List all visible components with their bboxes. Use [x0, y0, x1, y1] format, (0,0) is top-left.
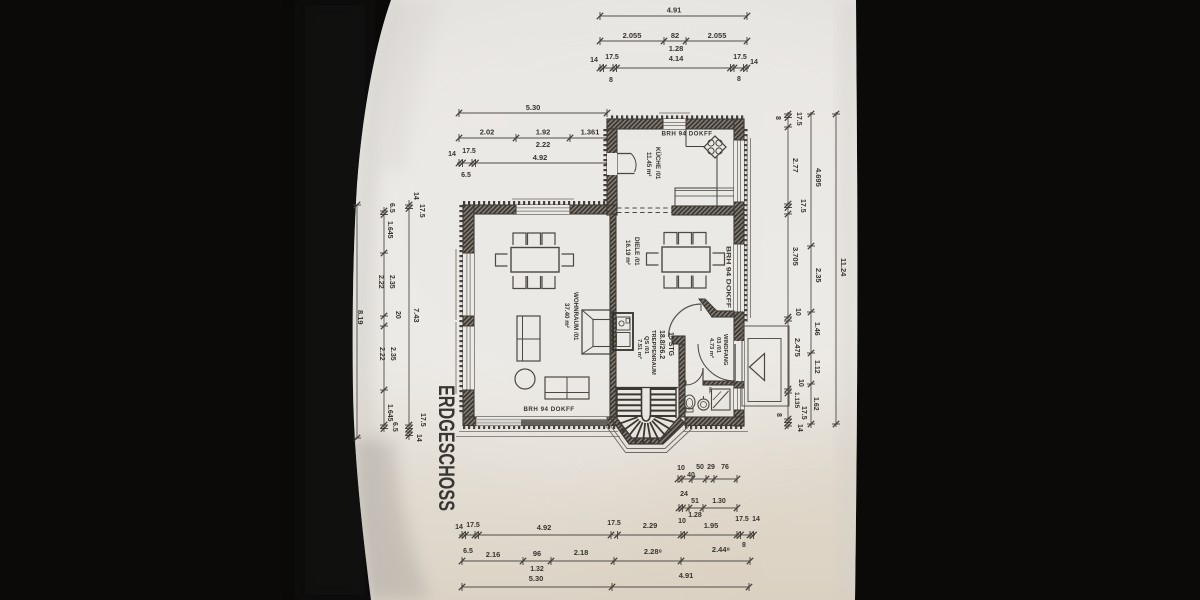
svg-text:1.135: 1.135	[793, 392, 800, 409]
svg-text:6.5: 6.5	[461, 172, 471, 179]
svg-text:7.43: 7.43	[412, 308, 421, 323]
svg-text:10: 10	[677, 465, 685, 472]
svg-text:14: 14	[455, 524, 463, 531]
svg-text:14: 14	[796, 424, 803, 432]
svg-text:1.46: 1.46	[813, 322, 820, 336]
svg-text:8: 8	[774, 116, 781, 120]
svg-text:4.695: 4.695	[814, 168, 823, 187]
svg-text:14: 14	[448, 151, 456, 158]
svg-text:2.02: 2.02	[480, 128, 495, 137]
svg-text:14: 14	[415, 434, 422, 442]
svg-text:2.77: 2.77	[791, 158, 800, 173]
svg-text:14: 14	[590, 57, 598, 64]
svg-text:24: 24	[680, 491, 688, 498]
svg-text:4.73 m²: 4.73 m²	[708, 338, 715, 358]
svg-text:11.24: 11.24	[839, 258, 848, 277]
svg-text:82: 82	[671, 31, 679, 40]
svg-text:10: 10	[794, 308, 801, 316]
svg-text:6.5: 6.5	[388, 203, 395, 213]
svg-text:2.475: 2.475	[793, 338, 802, 357]
svg-text:4.14: 4.14	[669, 54, 684, 63]
svg-text:BRH 94 DOKFF: BRH 94 DOKFF	[725, 246, 731, 308]
svg-text:15 STG: 15 STG	[667, 332, 674, 357]
svg-text:8: 8	[742, 542, 746, 549]
svg-text:1.12: 1.12	[813, 360, 820, 374]
svg-text:2.35: 2.35	[388, 275, 395, 289]
svg-text:2.18: 2.18	[574, 548, 589, 557]
svg-text:4.92: 4.92	[533, 153, 548, 162]
svg-text:BRH 94 DOKFF: BRH 94 DOKFF	[523, 406, 574, 413]
svg-text:WC: WC	[708, 387, 713, 394]
svg-text:17.5: 17.5	[462, 148, 476, 155]
svg-text:20: 20	[394, 311, 401, 319]
svg-text:2.44⁸: 2.44⁸	[712, 545, 731, 554]
svg-text:1.62: 1.62	[812, 397, 819, 411]
svg-text:17.5: 17.5	[466, 522, 480, 529]
svg-text:17.5: 17.5	[735, 516, 749, 523]
svg-text:2.22: 2.22	[378, 347, 385, 361]
svg-text:11.45 m²: 11.45 m²	[645, 152, 652, 176]
svg-text:96: 96	[533, 549, 541, 558]
svg-text:14: 14	[412, 192, 419, 200]
svg-text:2.16: 2.16	[486, 550, 501, 559]
svg-text:17.5: 17.5	[419, 413, 426, 427]
svg-text:1.32: 1.32	[530, 566, 544, 573]
svg-text:17.5: 17.5	[799, 199, 806, 213]
svg-text:29: 29	[707, 464, 715, 471]
svg-text:10: 10	[797, 379, 804, 387]
svg-text:17.5: 17.5	[800, 406, 807, 420]
svg-text:17.5: 17.5	[795, 112, 802, 126]
svg-text:3.705: 3.705	[791, 247, 800, 266]
svg-text:1.28: 1.28	[669, 44, 684, 53]
svg-text:TREPPENRAUM: TREPPENRAUM	[650, 330, 656, 375]
svg-text:1.30: 1.30	[712, 498, 726, 505]
svg-text:BRH 94 DOKFF: BRH 94 DOKFF	[661, 131, 712, 138]
svg-text:8: 8	[609, 77, 613, 84]
svg-text:16.19 m²: 16.19 m²	[624, 240, 631, 265]
svg-text:1.645: 1.645	[386, 404, 393, 422]
svg-text:2.28⁸: 2.28⁸	[644, 547, 663, 556]
svg-text:5.30: 5.30	[526, 103, 541, 112]
svg-text:WINDFANG: WINDFANG	[722, 334, 728, 366]
svg-text:QS /01: QS /01	[643, 336, 649, 355]
svg-text:03 /01: 03 /01	[715, 337, 721, 354]
svg-text:40: 40	[687, 472, 695, 479]
svg-text:2.22: 2.22	[536, 140, 551, 149]
svg-text:1.361: 1.361	[581, 128, 600, 137]
svg-text:17.5: 17.5	[605, 54, 619, 61]
svg-text:4.92: 4.92	[537, 523, 552, 532]
svg-text:2.29: 2.29	[643, 521, 658, 530]
svg-text:1.95: 1.95	[704, 521, 719, 530]
svg-text:5.30: 5.30	[529, 574, 544, 583]
svg-text:KÜCHE /01: KÜCHE /01	[654, 147, 661, 180]
svg-text:7.51 m²: 7.51 m²	[636, 339, 643, 359]
svg-text:6.5: 6.5	[463, 548, 473, 555]
svg-text:6.5: 6.5	[391, 422, 398, 432]
svg-text:4.91: 4.91	[667, 6, 682, 15]
svg-text:18.8/26.2: 18.8/26.2	[658, 330, 665, 359]
svg-text:ERDGESCHOSS: ERDGESCHOSS	[434, 385, 459, 511]
svg-text:17.5: 17.5	[418, 204, 425, 218]
svg-text:76: 76	[721, 464, 729, 471]
svg-text:8.19: 8.19	[356, 310, 365, 325]
svg-text:1.645: 1.645	[386, 221, 393, 239]
svg-text:14: 14	[752, 516, 760, 523]
svg-text:DIELE /01: DIELE /01	[633, 237, 640, 266]
svg-text:50: 50	[696, 464, 704, 471]
svg-text:2.055: 2.055	[623, 31, 642, 40]
svg-text:1.28: 1.28	[688, 512, 702, 519]
svg-text:2.35: 2.35	[389, 347, 396, 361]
svg-text:4.91: 4.91	[679, 571, 694, 580]
svg-text:17.5: 17.5	[733, 54, 747, 61]
svg-text:WOHNRAUM /01: WOHNRAUM /01	[572, 292, 579, 341]
svg-text:2.35: 2.35	[814, 268, 823, 283]
svg-text:14: 14	[750, 59, 758, 66]
svg-text:1.92: 1.92	[536, 128, 551, 137]
svg-text:17.5: 17.5	[607, 520, 621, 527]
svg-text:51: 51	[691, 498, 699, 505]
svg-text:10: 10	[678, 518, 686, 525]
svg-text:2.055: 2.055	[708, 31, 727, 40]
svg-text:37.40 m²: 37.40 m²	[563, 303, 570, 328]
svg-text:2.22: 2.22	[377, 275, 384, 289]
svg-text:8: 8	[737, 76, 741, 83]
svg-text:8: 8	[775, 413, 782, 417]
